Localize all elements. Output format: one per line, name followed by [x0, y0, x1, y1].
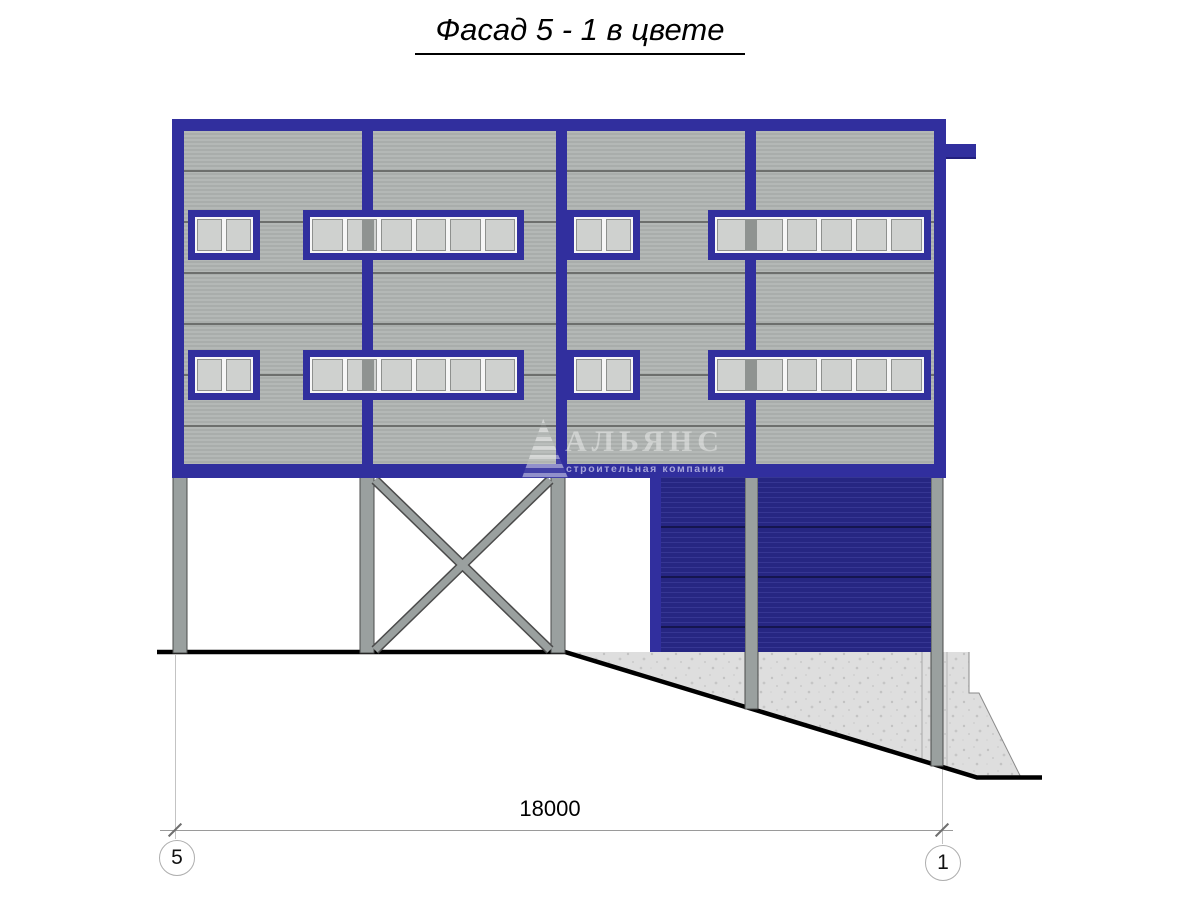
- support-column: [745, 477, 758, 709]
- support-column: [173, 477, 187, 653]
- window-pane: [226, 359, 251, 391]
- door-seam: [661, 626, 745, 628]
- mullion-shadow: [745, 219, 757, 251]
- facade-elevation-drawing: Фасад 5 - 1 в цвете: [0, 0, 1200, 900]
- window-long: [708, 210, 931, 260]
- window-pane: [606, 359, 632, 391]
- window-pane: [891, 219, 922, 251]
- support-column: [931, 477, 943, 766]
- window-small: [188, 350, 260, 400]
- window-pane: [717, 359, 748, 391]
- window-pane: [856, 219, 887, 251]
- window-pane: [576, 219, 602, 251]
- window-pane: [312, 219, 343, 251]
- window-pane: [787, 219, 818, 251]
- facade-mullion: [556, 131, 567, 464]
- door-seam: [758, 526, 931, 528]
- window-pane: [485, 219, 516, 251]
- support-column: [551, 477, 565, 653]
- watermark-company-name: АЛЬЯНС: [565, 425, 885, 459]
- window-pane: [226, 219, 251, 251]
- window-pane: [450, 219, 481, 251]
- roof-bracket: [946, 144, 976, 159]
- window-long: [708, 350, 931, 400]
- facade-mullion: [362, 131, 373, 464]
- door-seam: [661, 576, 745, 578]
- window-pane: [821, 219, 852, 251]
- watermark-company-subtitle: строительная компания: [566, 463, 886, 475]
- facade-mullion: [745, 131, 756, 464]
- building-facade: АЛЬЯНС строительная компания: [172, 119, 946, 478]
- window-pane: [450, 359, 481, 391]
- mullion-shadow: [362, 359, 374, 391]
- window-pane: [717, 219, 748, 251]
- cross-brace: [375, 480, 550, 650]
- window-pane: [416, 359, 447, 391]
- door-seam: [661, 526, 745, 528]
- window-pane: [312, 359, 343, 391]
- door-seam: [758, 576, 931, 578]
- window-pane: [381, 219, 412, 251]
- door-seam: [758, 626, 931, 628]
- window-small: [188, 210, 260, 260]
- window-pane: [197, 219, 222, 251]
- garage-door-jamb: [650, 477, 661, 652]
- garage-door: [758, 477, 931, 652]
- window-pane: [606, 219, 632, 251]
- window-pane: [416, 219, 447, 251]
- mullion-shadow: [745, 359, 757, 391]
- window-pane: [485, 359, 516, 391]
- window-small: [567, 210, 640, 260]
- window-pane: [821, 359, 852, 391]
- window-long: [303, 210, 524, 260]
- support-column: [360, 477, 374, 653]
- window-pane: [576, 359, 602, 391]
- window-long: [303, 350, 524, 400]
- window-small: [567, 350, 640, 400]
- mullion-shadow: [362, 219, 374, 251]
- window-pane: [197, 359, 222, 391]
- window-pane: [856, 359, 887, 391]
- window-pane: [381, 359, 412, 391]
- window-pane: [891, 359, 922, 391]
- garage-door: [661, 477, 745, 652]
- window-pane: [787, 359, 818, 391]
